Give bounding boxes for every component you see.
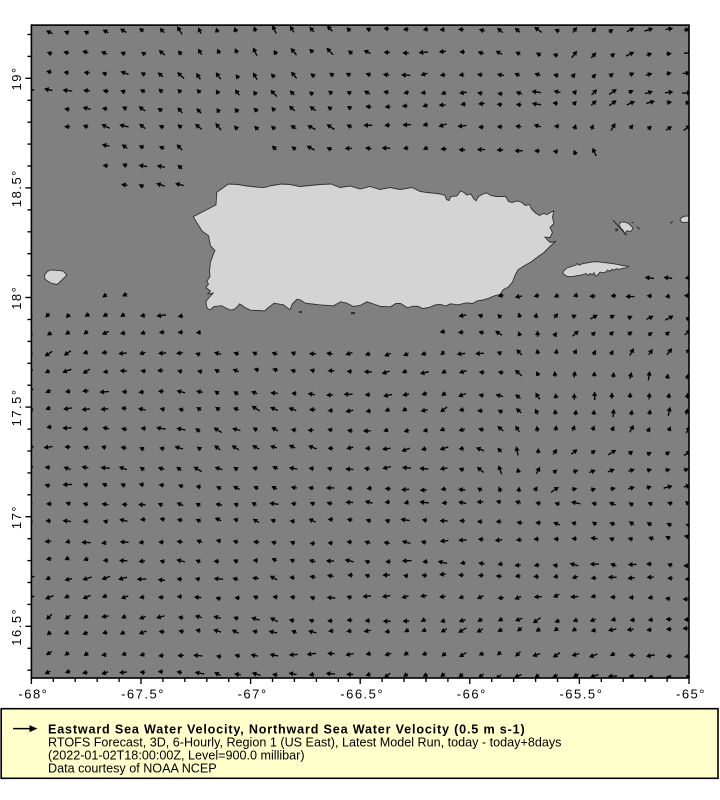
- svg-text:16.5°: 16.5°: [9, 608, 24, 646]
- svg-text:17.5°: 17.5°: [9, 388, 24, 426]
- svg-text:RTOFS Forecast, 3D, 6-Hourly,: RTOFS Forecast, 3D, 6-Hourly, Region 1 (…: [48, 735, 561, 749]
- svg-text:19°: 19°: [9, 66, 24, 90]
- svg-text:-66°: -66°: [457, 687, 487, 702]
- svg-text:17°: 17°: [9, 505, 24, 529]
- svg-text:-65.5°: -65.5°: [559, 687, 603, 702]
- svg-text:-68°: -68°: [18, 687, 48, 702]
- svg-text:Eastward Sea Water Velocity, N: Eastward Sea Water Velocity, Northward S…: [48, 722, 525, 736]
- svg-text:18.5°: 18.5°: [9, 169, 24, 207]
- svg-text:-67.5°: -67.5°: [121, 687, 165, 702]
- svg-text:-65°: -65°: [676, 687, 706, 702]
- svg-text:-67°: -67°: [238, 687, 268, 702]
- svg-text:-66.5°: -66.5°: [340, 687, 384, 702]
- svg-text:Data courtesy of NOAA NCEP: Data courtesy of NOAA NCEP: [48, 762, 217, 776]
- svg-text:(2022-01-02T18:00:00Z, Level=9: (2022-01-02T18:00:00Z, Level=900.0 milli…: [48, 749, 305, 763]
- svg-text:18°: 18°: [9, 286, 24, 310]
